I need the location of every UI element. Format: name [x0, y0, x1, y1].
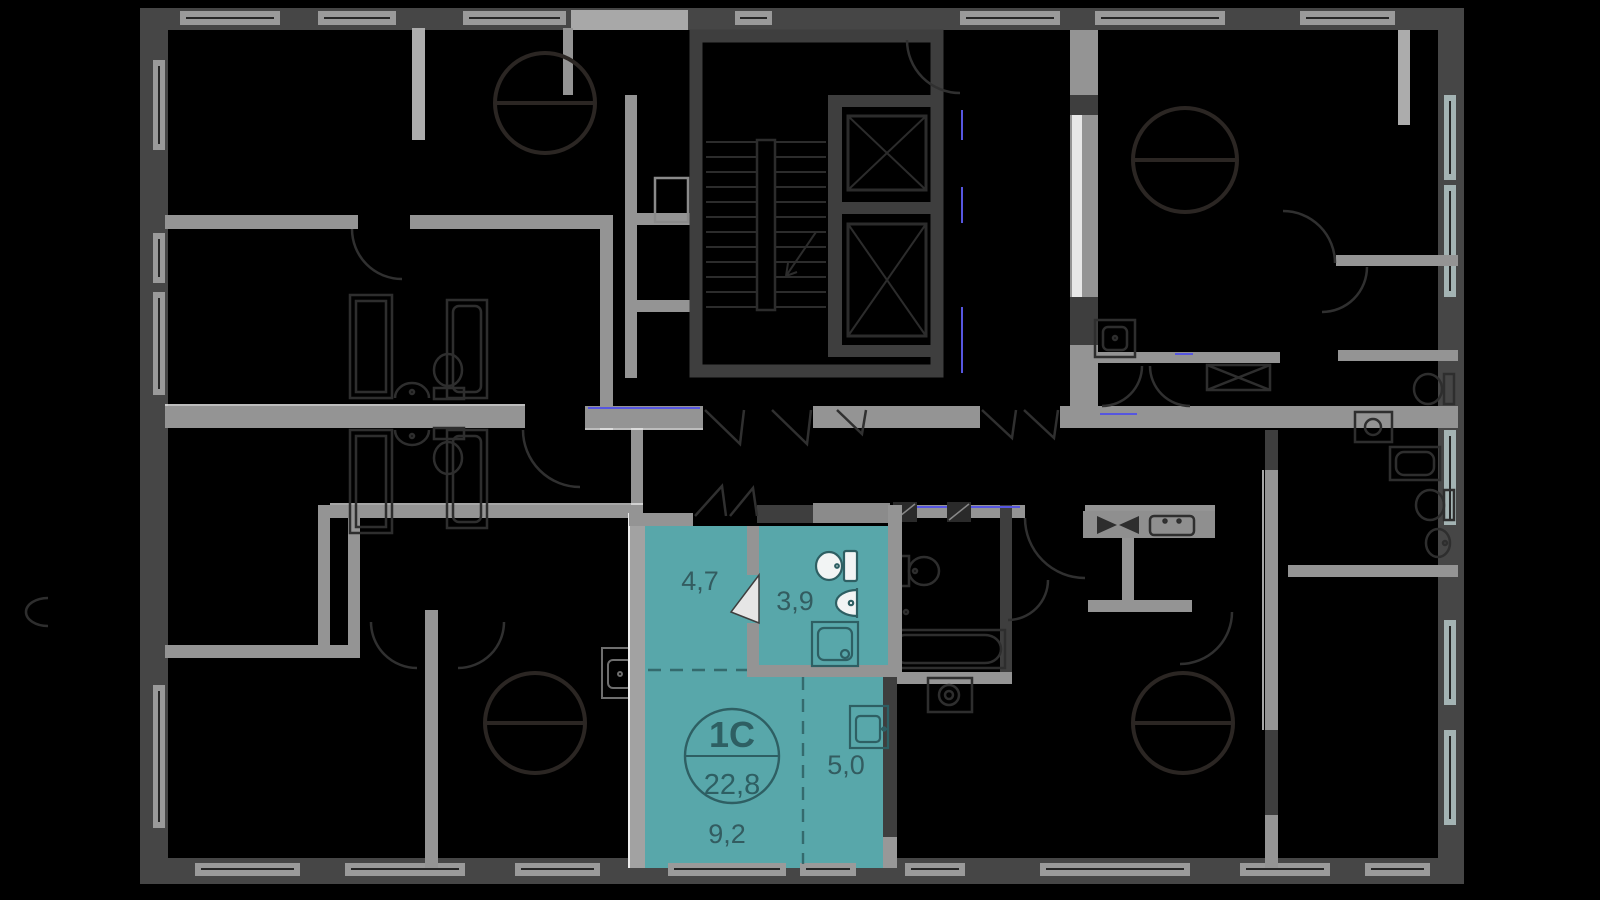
room-area-label: 4,7 — [681, 566, 719, 596]
door-arc-icon — [1180, 612, 1232, 664]
round-table-icon — [495, 53, 595, 153]
stair-elevator-core — [655, 36, 937, 371]
room-area-label: 9,2 — [708, 819, 746, 849]
apartment-total-area-label: 22,8 — [704, 769, 760, 801]
door-leaf-icon — [982, 410, 1016, 438]
floor-plan-viewport: 4,7 3,9 5,0 9,2 1С 22,8 — [0, 0, 1600, 900]
door-arc-icon — [1008, 580, 1048, 620]
apartment-wall — [883, 677, 897, 837]
door-arc-icon — [523, 430, 580, 487]
toilet-icon — [816, 551, 857, 581]
apartment-1c-highlighted[interactable]: 4,7 3,9 5,0 9,2 1С 22,8 — [629, 486, 902, 876]
door-arc-icon — [1322, 267, 1367, 312]
door-arc-icon — [371, 622, 417, 668]
partition-wall — [747, 623, 759, 665]
entrance-door-icon — [695, 486, 726, 516]
apartment-type-label: 1С — [709, 714, 755, 755]
wardrobe-icon — [1207, 365, 1270, 390]
sink-icon — [395, 383, 429, 398]
door-arc-icon — [1102, 366, 1142, 406]
door-leaf-icon — [1024, 410, 1058, 438]
apartment-wall — [757, 505, 813, 523]
door-arc-icon — [352, 229, 402, 279]
floor-plan: 4,7 3,9 5,0 9,2 1С 22,8 — [0, 0, 1600, 900]
elevator-icon — [848, 224, 926, 336]
apartment-wall — [629, 513, 693, 526]
door-arc-icon — [1283, 211, 1335, 263]
door-leaf-icon — [772, 410, 811, 444]
room-area-label: 3,9 — [776, 586, 814, 616]
building-entrance — [571, 10, 688, 30]
wardrobe-icon — [350, 295, 392, 398]
shower-icon — [447, 300, 487, 398]
sink-icon — [395, 430, 429, 445]
staircase-icon — [706, 140, 826, 310]
entrance-door-icon — [730, 488, 757, 516]
door-leaf-icon — [705, 410, 744, 444]
door-arc-icon — [1150, 366, 1190, 406]
round-table-icon — [1133, 673, 1233, 773]
door-arc-icon — [1025, 518, 1085, 578]
elevator-icon — [848, 116, 926, 190]
apartment-wall — [883, 837, 897, 868]
bathtub-icon — [893, 630, 1005, 668]
apartment-badge: 1С 22,8 — [685, 709, 779, 803]
kitchen-sink-icon — [1095, 320, 1135, 357]
bathtub-icon — [1390, 447, 1440, 480]
door-arc-icon — [458, 622, 504, 668]
room-area-label: 5,0 — [827, 750, 865, 780]
partition-wall — [747, 526, 759, 575]
apartment-wall — [629, 513, 645, 868]
round-table-icon — [1133, 108, 1237, 212]
stair-direction-arrow — [786, 232, 816, 276]
toilet-icon — [898, 556, 939, 586]
apartment-wall — [888, 505, 902, 677]
apartment-wall — [813, 503, 890, 523]
round-table-icon — [485, 673, 585, 773]
